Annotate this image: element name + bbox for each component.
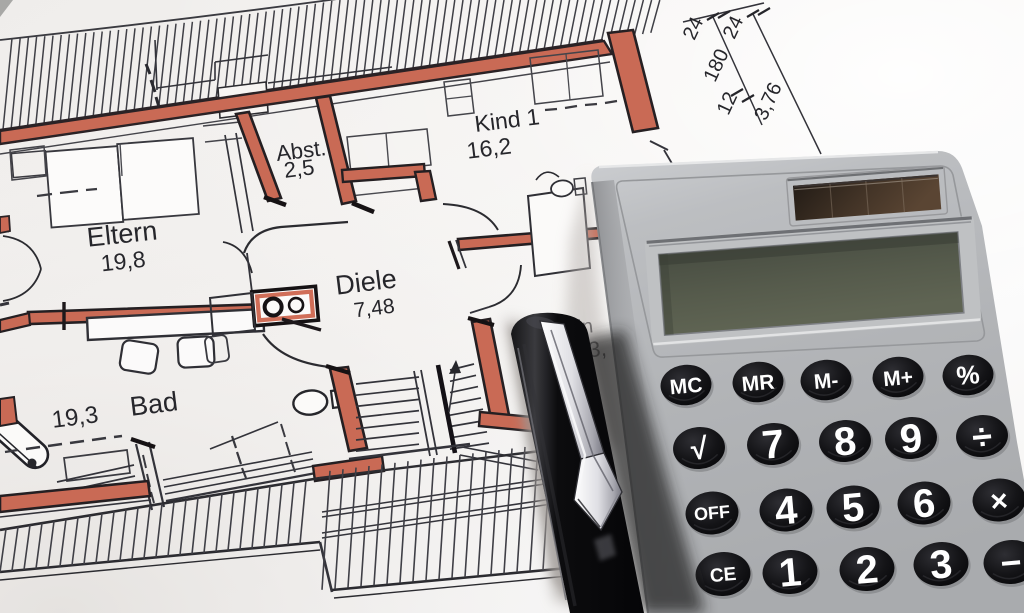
svg-text:M-: M-: [813, 369, 839, 394]
svg-text:3: 3: [928, 542, 954, 588]
svg-text:1: 1: [777, 550, 803, 596]
svg-text:19,3: 19,3: [50, 401, 100, 433]
svg-text:CE: CE: [709, 564, 737, 587]
svg-text:MR: MR: [741, 371, 776, 397]
svg-text:7: 7: [760, 422, 786, 468]
svg-text:4: 4: [773, 488, 800, 534]
svg-text:−: −: [999, 541, 1024, 584]
svg-text:√: √: [689, 432, 709, 466]
svg-text:8: 8: [832, 419, 858, 465]
svg-text:2: 2: [854, 547, 880, 593]
svg-text:Bad: Bad: [128, 386, 179, 422]
svg-text:×: ×: [989, 484, 1009, 518]
svg-text:MC: MC: [669, 374, 704, 400]
svg-text:9: 9: [898, 416, 924, 462]
svg-text:OFF: OFF: [693, 501, 731, 524]
svg-text:2,5: 2,5: [282, 154, 315, 183]
svg-text:%: %: [955, 359, 981, 391]
svg-text:5: 5: [840, 485, 866, 531]
svg-text:M+: M+: [882, 366, 914, 392]
svg-text:19,8: 19,8: [100, 246, 147, 277]
svg-text:16,2: 16,2: [465, 132, 513, 163]
svg-text:6: 6: [911, 481, 937, 527]
svg-text:÷: ÷: [970, 415, 993, 458]
